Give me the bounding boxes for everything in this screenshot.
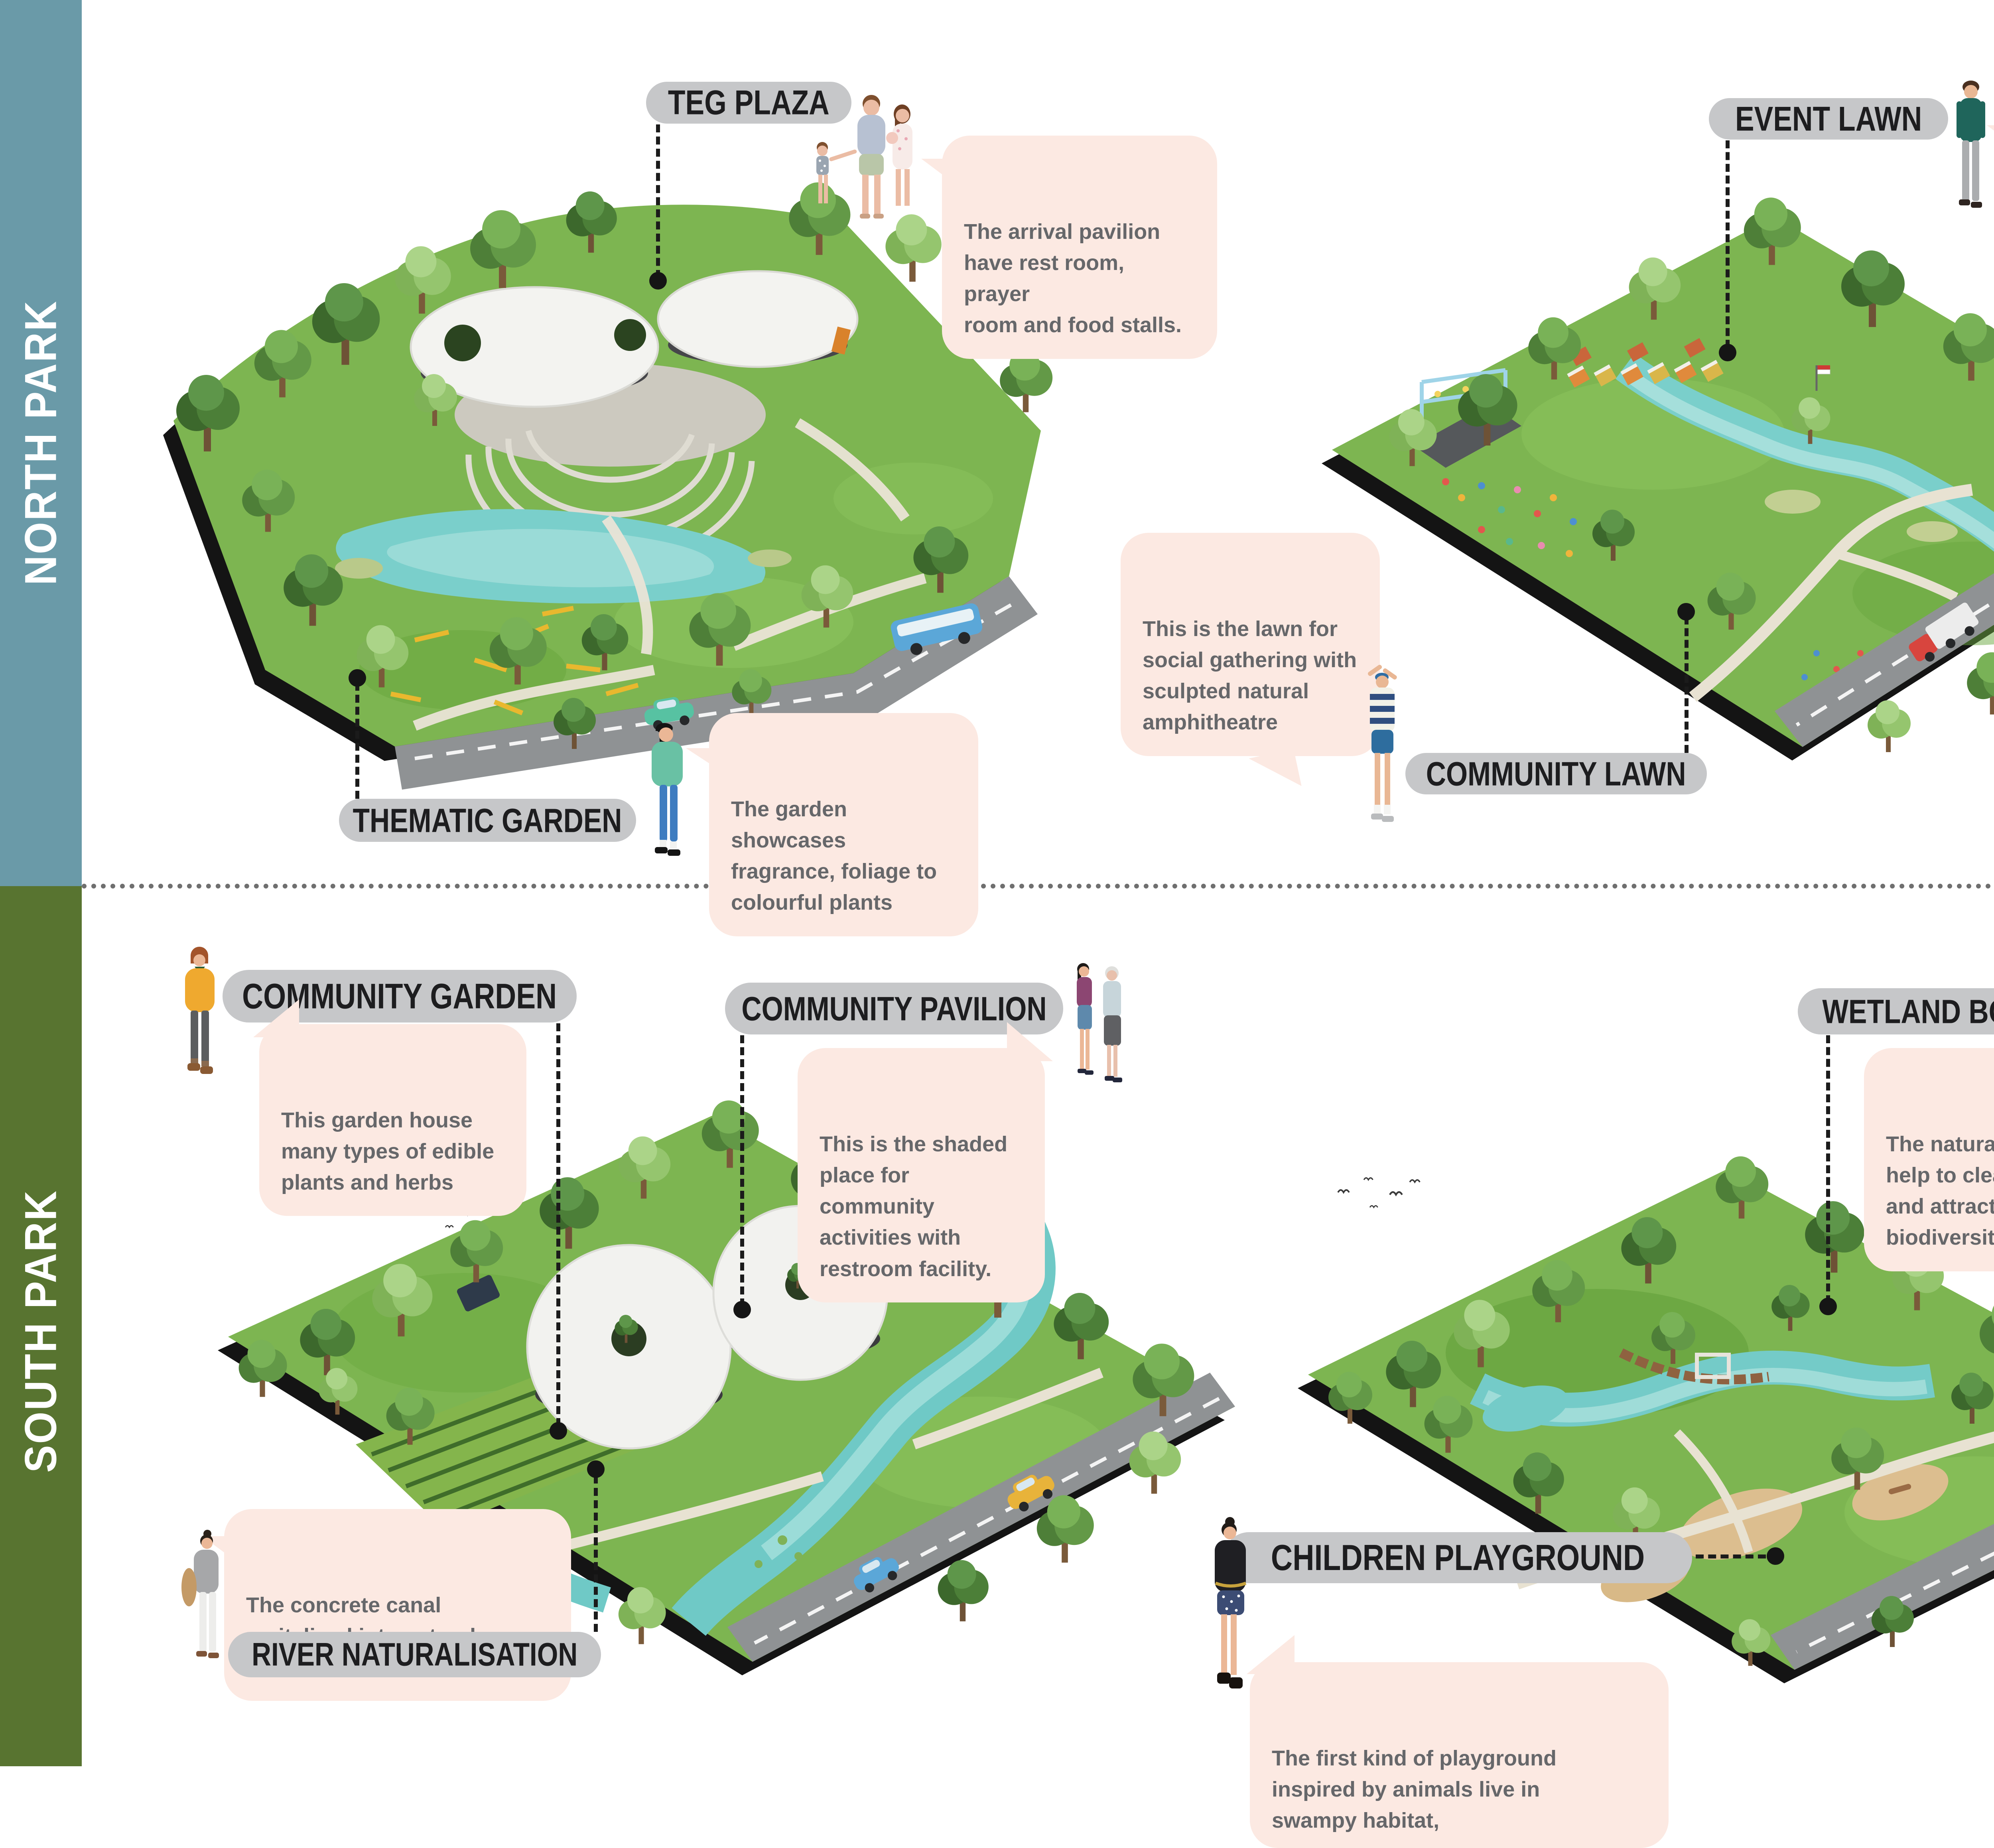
callout-wetland-boardwalk: The naturalised drain help to clean the … bbox=[1864, 1048, 1994, 1271]
callout-teg-plaza: The arrival pavilion have rest room, pra… bbox=[942, 136, 1217, 359]
children-playground-figure bbox=[1192, 1512, 1261, 1731]
family-figure bbox=[798, 91, 937, 227]
community-lawn-figure bbox=[1351, 643, 1413, 839]
label-wetland-boardwalk: WETLAND BOARDWALK bbox=[1798, 988, 1994, 1034]
community-garden-figure bbox=[171, 944, 229, 1088]
south-park-title: SOUTH PARK bbox=[16, 1190, 67, 1473]
callout-community-lawn: This is the lawn for social gathering wi… bbox=[1121, 533, 1380, 756]
label-river-naturalisation: RIVER NATURALISATION bbox=[228, 1632, 601, 1677]
connector-community-garden bbox=[556, 1023, 560, 1426]
label-thematic-garden: THEMATIC GARDEN bbox=[339, 799, 636, 842]
connector-dot-river-naturalisation bbox=[587, 1460, 605, 1478]
north-park-title: NORTH PARK bbox=[16, 300, 67, 585]
connector-community-pavilion bbox=[740, 1035, 744, 1306]
connector-river-naturalisation bbox=[594, 1476, 598, 1632]
connector-dot-community-garden bbox=[550, 1422, 567, 1440]
park-render-teg-plaza bbox=[136, 175, 1061, 798]
event-lawn-figure bbox=[1948, 77, 1994, 226]
connector-children-playground bbox=[1696, 1554, 1766, 1558]
connector-dot-thematic-garden bbox=[349, 669, 366, 687]
connector-dot-children-playground bbox=[1767, 1547, 1784, 1565]
label-community-lawn: COMMUNITY LAWN bbox=[1405, 753, 1707, 794]
river-naturalisation-figure bbox=[173, 1527, 237, 1681]
section-divider bbox=[82, 884, 1994, 889]
thematic-garden-figure bbox=[623, 717, 703, 865]
connector-dot-teg-plaza bbox=[649, 272, 667, 290]
connector-event-lawn bbox=[1726, 140, 1730, 348]
connector-thematic-garden bbox=[355, 683, 359, 799]
callout-thematic-garden: The garden showcases fragrance, foliage … bbox=[709, 713, 978, 936]
connector-teg-plaza bbox=[656, 124, 660, 278]
connector-wetland-boardwalk bbox=[1826, 1035, 1830, 1303]
connector-community-lawn bbox=[1685, 617, 1689, 753]
connector-dot-event-lawn bbox=[1719, 344, 1736, 361]
callout-tail bbox=[253, 999, 299, 1037]
connector-dot-wetland-boardwalk bbox=[1819, 1298, 1837, 1315]
callout-children-playground: The first kind of playground inspired by… bbox=[1250, 1662, 1669, 1848]
label-event-lawn: EVENT LAWN bbox=[1709, 98, 1948, 140]
label-children-playground: CHILDREN PLAYGROUND bbox=[1224, 1532, 1692, 1583]
community-pavilion-figures bbox=[1061, 956, 1135, 1088]
callout-tail bbox=[1007, 1022, 1053, 1061]
presentation-board: { "sidebar": { "north": "NORTH PARK", "s… bbox=[0, 0, 1994, 1766]
callout-community-pavilion: This is the shaded place for community a… bbox=[798, 1048, 1045, 1302]
connector-dot-community-lawn bbox=[1677, 603, 1695, 621]
connector-dot-community-pavilion bbox=[733, 1301, 751, 1318]
callout-tail bbox=[1249, 749, 1301, 796]
callout-community-garden: This garden house many types of edible p… bbox=[259, 1024, 526, 1216]
